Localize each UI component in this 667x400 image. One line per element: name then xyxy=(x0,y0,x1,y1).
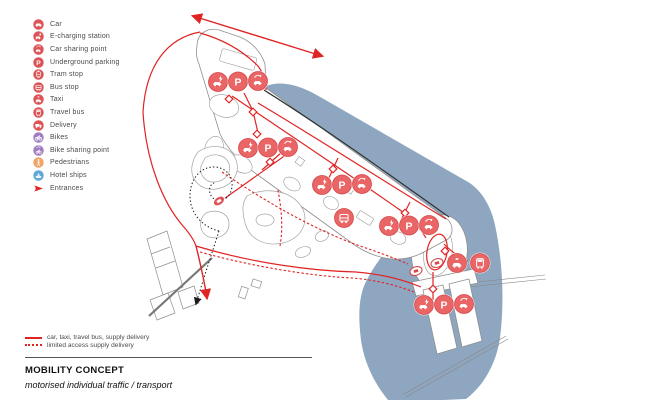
page-title: MOBILITY CONCEPT xyxy=(25,365,325,376)
solid-line-swatch xyxy=(25,337,42,339)
e-charging-marker xyxy=(312,175,333,196)
legend-item-label: Tram stop xyxy=(50,71,83,78)
car-sharing-marker xyxy=(454,294,475,315)
parking-icon xyxy=(339,180,346,191)
legend-item-delivery: Delivery xyxy=(33,119,120,132)
bike-icon xyxy=(33,132,44,143)
legend-item-label: Bus stop xyxy=(50,84,79,91)
ship-icon xyxy=(33,170,44,181)
entrance-arrow-icon xyxy=(33,183,44,194)
parking-marker xyxy=(228,71,249,92)
parking-icon xyxy=(33,57,44,68)
tram-stop-marker xyxy=(212,194,227,208)
taxi-icon xyxy=(33,94,44,105)
footer-divider xyxy=(25,357,312,358)
legend-item-label: Delivery xyxy=(50,122,77,129)
e-charging-marker xyxy=(379,216,400,237)
legend-item-e-charging-station: E-charging station xyxy=(33,31,120,44)
parking-icon xyxy=(235,77,242,88)
legend-item-label: Bikes xyxy=(50,134,68,141)
travel-bus-marker xyxy=(470,253,491,274)
legend-item-label: Underground parking xyxy=(50,59,120,66)
e-charging-icon xyxy=(33,31,44,42)
delivery-icon xyxy=(33,120,44,131)
car-sharing-marker xyxy=(352,174,373,195)
legend-item-label: Pedestrians xyxy=(50,159,89,166)
solid-line-label: car, taxi, travel bus, supply delivery xyxy=(47,334,149,341)
travel-bus-icon xyxy=(33,107,44,118)
line-legend-solid: car, taxi, travel bus, supply delivery xyxy=(25,334,325,342)
legend-item-underground-parking: Underground parking xyxy=(33,56,120,69)
car-sharing-marker xyxy=(419,215,440,236)
parking-marker xyxy=(258,137,279,158)
legend-item-label: Bike sharing point xyxy=(50,147,109,154)
parking-marker xyxy=(399,215,420,236)
legend-item-label: Hotel ships xyxy=(50,172,87,179)
footer: car, taxi, travel bus, supply delivery l… xyxy=(25,334,325,390)
legend-item-bus-stop: Bus stop xyxy=(33,81,120,94)
existing-buildings xyxy=(147,231,262,320)
bus-icon xyxy=(33,82,44,93)
car-sharing-marker xyxy=(248,71,269,92)
dotted-line-label: limited access supply delivery xyxy=(47,342,134,349)
legend: CarE-charging stationCar sharing pointUn… xyxy=(33,18,120,194)
car-icon xyxy=(33,19,44,30)
legend-item-taxi: Taxi xyxy=(33,94,120,107)
legend-item-label: E-charging station xyxy=(50,33,110,40)
e-charging-marker xyxy=(238,138,259,159)
pedestrian-icon xyxy=(33,157,44,168)
mobility-concept-plan: P xyxy=(0,0,667,400)
parking-icon xyxy=(265,143,272,154)
legend-item-label: Car sharing point xyxy=(50,46,107,53)
legend-item-hotel-ships: Hotel ships xyxy=(33,169,120,182)
e-charging-marker xyxy=(208,72,229,93)
parking-marker xyxy=(332,174,353,195)
legend-item-label: Entrances xyxy=(50,185,83,192)
taxi-marker xyxy=(447,253,468,274)
legend-item-pedestrians: Pedestrians xyxy=(33,157,120,170)
legend-list: CarE-charging stationCar sharing pointUn… xyxy=(33,18,120,194)
parking-marker xyxy=(434,294,455,315)
legend-item-tram-stop: Tram stop xyxy=(33,68,120,81)
legend-item-travel-bus: Travel bus xyxy=(33,106,120,119)
legend-item-entrances: Entrances xyxy=(33,182,120,195)
legend-item-bikes: Bikes xyxy=(33,131,120,144)
page-subtitle: motorised individual traffic / transport xyxy=(25,380,325,390)
legend-item-label: Travel bus xyxy=(50,109,84,116)
legend-item-label: Car xyxy=(50,21,62,28)
e-charging-marker xyxy=(414,295,435,316)
legend-item-label: Taxi xyxy=(50,96,63,103)
dotted-line-swatch xyxy=(25,344,42,346)
bus-marker xyxy=(334,208,355,229)
line-legend-dotted: limited access supply delivery xyxy=(25,342,325,350)
legend-item-car: Car xyxy=(33,18,120,31)
car-sharing-icon xyxy=(33,44,44,55)
legend-item-bike-sharing-point: Bike sharing point xyxy=(33,144,120,157)
bike-sharing-icon xyxy=(33,145,44,156)
parking-icon xyxy=(406,221,413,232)
parking-icon xyxy=(441,300,448,311)
car-sharing-marker xyxy=(278,137,299,158)
legend-item-car-sharing-point: Car sharing point xyxy=(33,43,120,56)
tram-icon xyxy=(33,69,44,80)
